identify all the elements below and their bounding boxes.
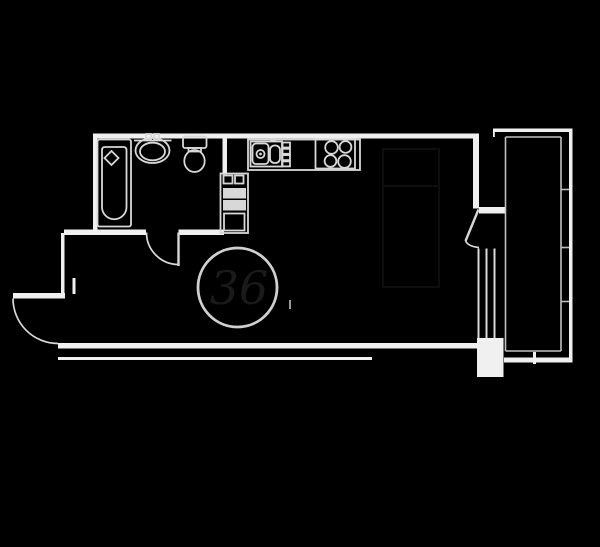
table-marker-label: 36 [210,261,269,315]
balcony-bottom-tick [533,352,536,364]
wall-balcony-right [569,129,573,363]
wall-bottom-main [58,343,478,349]
drawer-cell-4 [283,161,291,166]
wall-bottom-outer-line [58,357,372,360]
wall-window-sill-pier [477,338,504,377]
balcony [506,137,570,364]
appliance-band-2 [223,200,246,211]
wall-hall-left [61,233,65,294]
wall-entry-top [13,293,65,299]
burner-top-right [340,141,352,153]
bathroom-door-swing-arc [147,233,179,265]
wall-bath-bottom-right [179,230,225,236]
balcony-door-swing-arc [466,241,480,248]
wall-bath-kitchen-divider [223,139,228,175]
drawer-cell-1 [283,143,291,148]
appliance-band-1 [223,188,246,199]
misc-marks [290,149,439,309]
washer-column [221,174,249,234]
entry-door-swing-arc [13,299,58,344]
wall-balcony-top [493,129,573,133]
appliance-top-cell-b [235,176,244,184]
bed-faint-outline [383,149,439,287]
wall-balcony-bottom [504,358,573,363]
wall-hall-pier [73,278,76,294]
wall-bath-bottom-left [64,230,146,236]
floor-plan-canvas: 36 [0,0,600,547]
washbasin-inner [140,143,165,161]
drawer-cell-3 [283,155,291,160]
balcony-door-leaf [466,210,479,242]
appliance-top-cell-a [224,176,233,184]
kitchen-sink-bowl-right [270,146,280,164]
kitchen-fixtures [248,138,360,170]
bathroom-fixtures [98,134,207,227]
dining-table-group: 36 [198,248,277,327]
bathtub-drain-diamond [105,151,119,165]
burner-bottom-left [325,155,337,167]
kitchen-faucet [271,138,277,142]
toilet-bowl [184,150,204,172]
window [479,249,495,339]
floor-plan-drawing: 36 [0,0,600,547]
drawer-cell-2 [283,149,291,154]
wall-balcony-top-stub [493,129,495,138]
burner-bottom-right [338,155,351,168]
kitchen-sink-drain-dot [259,153,262,156]
appliance-door [224,214,245,231]
wall-right-upper [473,139,479,209]
wall-balcony-door-jamb [479,207,506,214]
burner-top-left [325,141,338,154]
